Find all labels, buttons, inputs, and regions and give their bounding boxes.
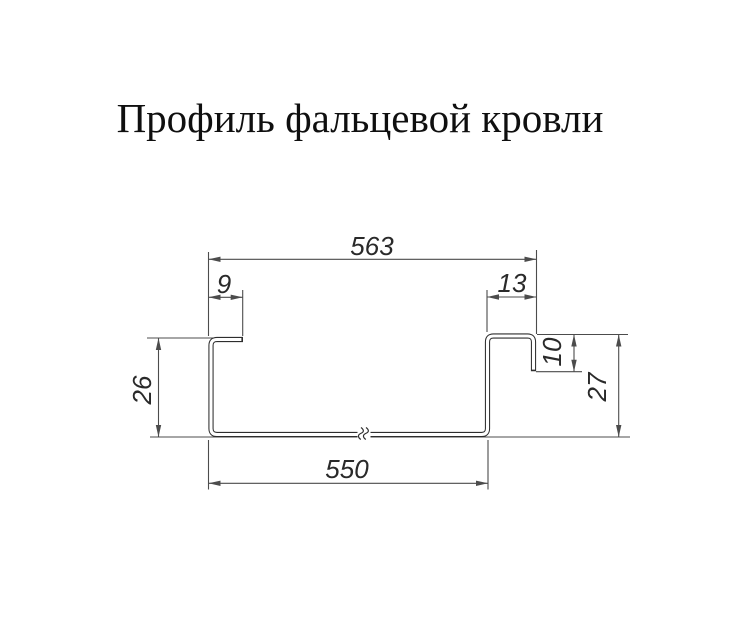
arrowhead-27-top bbox=[616, 335, 621, 347]
dim-label-left-height: 26 bbox=[127, 375, 157, 405]
technical-drawing: Профиль фальцевой кровли 563 9 bbox=[0, 0, 742, 634]
arrowhead-10-bottom bbox=[571, 360, 576, 372]
arrowhead-563-right bbox=[525, 257, 537, 262]
dim-label-right-height: 27 bbox=[582, 371, 612, 402]
dimension-bottom-width: 550 bbox=[209, 454, 489, 486]
dim-label-bottom-width: 550 bbox=[325, 454, 369, 484]
dimension-overall-top-width: 563 bbox=[209, 231, 537, 262]
dimension-right-lip-height: 10 bbox=[537, 335, 577, 372]
arrowhead-550-left bbox=[209, 481, 221, 486]
arrowhead-10-top bbox=[571, 335, 576, 347]
drawing-canvas: Профиль фальцевой кровли 563 9 bbox=[0, 0, 742, 634]
arrowhead-26-bottom bbox=[156, 425, 161, 437]
dim-label-right-flange-width: 13 bbox=[498, 268, 527, 298]
arrowhead-550-right bbox=[476, 481, 488, 486]
arrowhead-9-right bbox=[231, 295, 243, 300]
page-title: Профиль фальцевой кровли bbox=[117, 95, 604, 141]
dim-label-right-lip-height: 10 bbox=[537, 337, 567, 366]
dimension-left-flange-width: 9 bbox=[209, 269, 243, 300]
break-mark bbox=[358, 427, 371, 440]
dim-label-overall-top-width: 563 bbox=[350, 231, 394, 261]
arrowhead-27-bottom bbox=[616, 425, 621, 437]
arrowhead-563-left bbox=[209, 257, 221, 262]
arrowhead-26-top bbox=[156, 338, 161, 350]
dimension-right-height: 27 bbox=[582, 335, 621, 438]
dimension-right-flange-width: 13 bbox=[487, 268, 537, 300]
dim-label-left-flange-width: 9 bbox=[217, 269, 231, 299]
dimension-left-height: 26 bbox=[127, 338, 161, 437]
profile-outline bbox=[211, 336, 534, 440]
profile-sheet-thickness bbox=[211, 336, 534, 435]
